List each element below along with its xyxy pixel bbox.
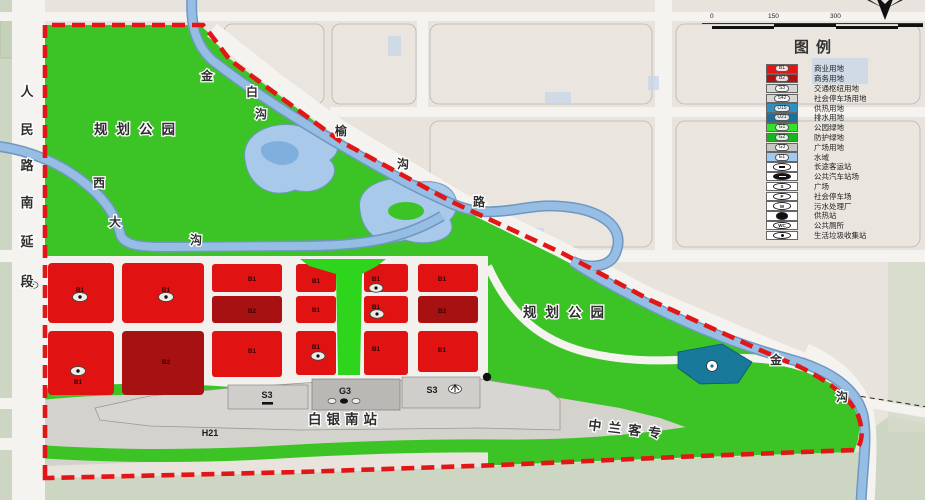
legend-panel: 图例 B1 商业用地 B2 商务用地 S3 交通枢纽用地 S42 社会停车场用地… <box>700 36 925 240</box>
h21-label: H21 <box>202 428 219 438</box>
park2-label: 规划公园 <box>523 304 613 320</box>
parking-badge-icon: P <box>773 193 791 201</box>
legend-item-water: E1 水域 <box>700 152 925 162</box>
svg-text:B1: B1 <box>162 287 171 294</box>
legend-icon-square: S 广场 <box>700 182 925 192</box>
station-name: 白银南站 <box>308 411 382 427</box>
bus-filled-icon <box>773 173 791 181</box>
svg-text:白: 白 <box>246 84 258 99</box>
svg-text:B1: B1 <box>312 344 321 351</box>
svg-text:路: 路 <box>473 194 486 209</box>
scale-bar: 0 150 300 <box>702 13 923 33</box>
legend-icon-sewage-plant: W 污水处理厂 <box>700 201 925 211</box>
bus-badge-icon <box>71 366 86 375</box>
legend-icon-garbage-station: 生活垃圾收集站 <box>700 231 925 241</box>
svg-text:沟: 沟 <box>255 106 267 121</box>
svg-text:B1: B1 <box>312 278 321 285</box>
scale-tick: 150 <box>768 13 779 20</box>
svg-text:B2: B2 <box>438 308 447 315</box>
legend-item-park-green: G1 公园绿地 <box>700 123 925 133</box>
svg-text:B1: B1 <box>248 348 257 355</box>
legend-item-protective-green: G2 防护绿地 <box>700 133 925 143</box>
legend-item-transport-hub: S3 交通枢纽用地 <box>700 84 925 94</box>
svg-text:大: 大 <box>109 214 121 229</box>
svg-text:金: 金 <box>200 68 214 83</box>
heat-blob-icon <box>776 212 788 220</box>
svg-text:B1: B1 <box>74 379 83 386</box>
s3-block-right <box>402 377 480 408</box>
bus-bar-icon <box>262 402 273 405</box>
svg-text:B1: B1 <box>312 307 321 314</box>
svg-text:B2: B2 <box>162 359 171 366</box>
mini-badge-filled-icon <box>340 398 348 403</box>
dot-badge-icon <box>773 232 791 240</box>
svg-text:B1: B1 <box>438 276 447 283</box>
scale-tick: 300 <box>830 13 841 20</box>
renmin-road <box>12 0 45 500</box>
svg-text:B1: B1 <box>372 276 381 283</box>
svg-text:沟: 沟 <box>397 156 409 171</box>
svg-text:B1: B1 <box>76 287 85 294</box>
planning-map: 规划公园 规划公园 白银南站 中兰客专 H21 人 民 路 南 延 段 金 白 … <box>0 0 925 500</box>
toilet-badge-icon: WC <box>773 222 791 230</box>
legend-item-commercial: B1 商业用地 <box>700 64 925 74</box>
sewage-badge-icon: W <box>773 202 791 210</box>
svg-text:B2: B2 <box>248 308 257 315</box>
svg-text:民: 民 <box>20 122 33 137</box>
svg-text:延: 延 <box>19 234 34 249</box>
s3-right-label: S3 <box>426 385 437 395</box>
junction-dot-icon <box>483 373 491 381</box>
legend-icon-coach-station: 长途客运站 <box>700 162 925 172</box>
mini-badge-icon <box>352 398 360 403</box>
svg-text:榆: 榆 <box>335 123 348 138</box>
bus-badge-icon <box>311 352 325 361</box>
scale-tick: 0 <box>710 13 714 20</box>
legend-item-drainage: U21 排水用地 <box>700 113 925 123</box>
s3-left-label: S3 <box>261 390 272 400</box>
park1-label: 规划公园 <box>94 121 184 137</box>
legend-icon-heating-station: 供热站 <box>700 211 925 221</box>
svg-text:B1: B1 <box>372 304 381 311</box>
legend-icon-parking: P 社会停车场 <box>700 191 925 201</box>
svg-text:西: 西 <box>93 176 105 190</box>
svg-text:金: 金 <box>769 352 783 367</box>
bus-outline-icon <box>773 163 791 171</box>
legend-title: 图例 <box>700 36 925 57</box>
mini-badge-icon <box>328 398 336 403</box>
legend-icon-public-toilet: WC 公共厕所 <box>700 221 925 231</box>
legend-item-heating: U15 供热用地 <box>700 103 925 113</box>
legend-item-public-parking-land: S42 社会停车场用地 <box>700 93 925 103</box>
svg-text:段: 段 <box>20 274 33 289</box>
svg-text:沟: 沟 <box>836 389 848 404</box>
svg-text:南: 南 <box>20 195 33 210</box>
legend-item-square: G3 广场用地 <box>700 142 925 152</box>
square-badge-icon: S <box>773 183 791 191</box>
legend-item-business: B2 商务用地 <box>700 74 925 84</box>
g3-label: G3 <box>339 386 351 396</box>
g3-block <box>312 379 400 410</box>
svg-text:人: 人 <box>20 84 34 99</box>
svg-text:B1: B1 <box>438 347 447 354</box>
svg-text:路: 路 <box>20 158 34 173</box>
svg-text:沟: 沟 <box>190 232 202 247</box>
svg-text:B1: B1 <box>372 346 381 353</box>
svg-text:B1: B1 <box>248 276 257 283</box>
legend-icon-bus-depot: 公共汽车站场 <box>700 172 925 182</box>
bus-badge-icon <box>369 284 383 293</box>
